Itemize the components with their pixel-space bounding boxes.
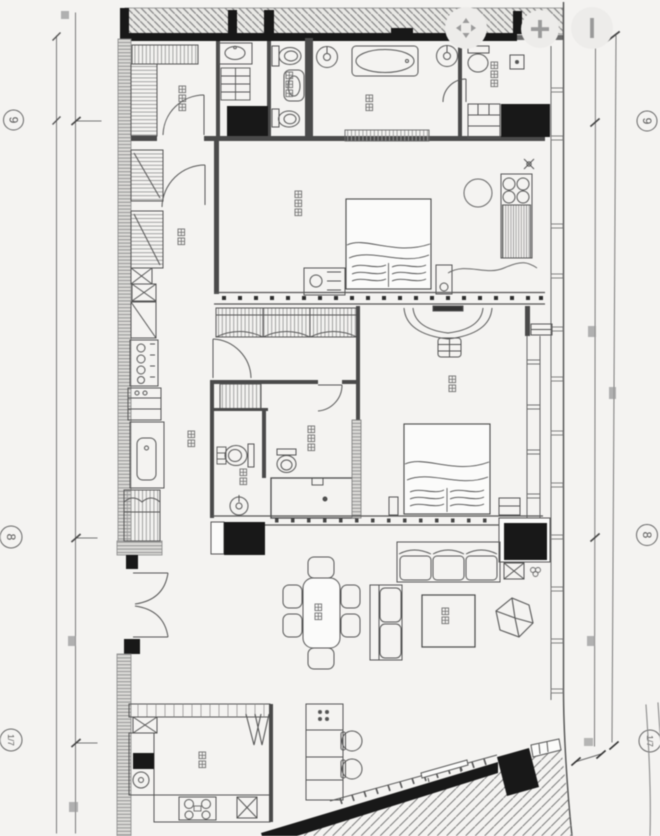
svg-text:1/7: 1/7: [645, 735, 655, 747]
svg-text:1/7: 1/7: [6, 734, 16, 746]
svg-text:9: 9: [640, 118, 654, 125]
svg-text:8: 8: [4, 534, 18, 541]
svg-text:9: 9: [7, 117, 21, 124]
svg-text:8: 8: [640, 532, 654, 539]
